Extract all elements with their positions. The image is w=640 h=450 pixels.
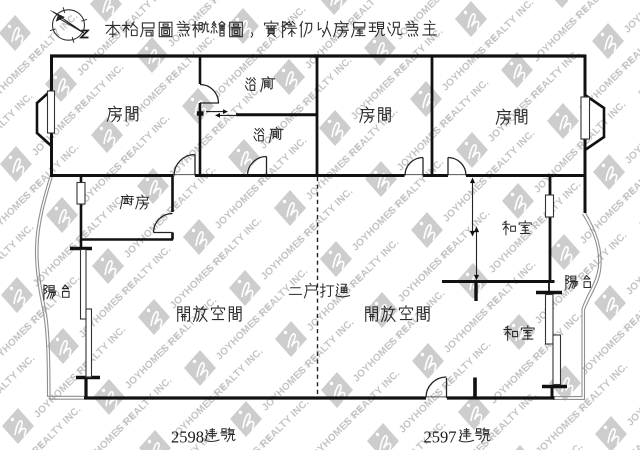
- svg-text:2598: 2598: [171, 428, 204, 447]
- svg-text:2597: 2597: [424, 428, 457, 447]
